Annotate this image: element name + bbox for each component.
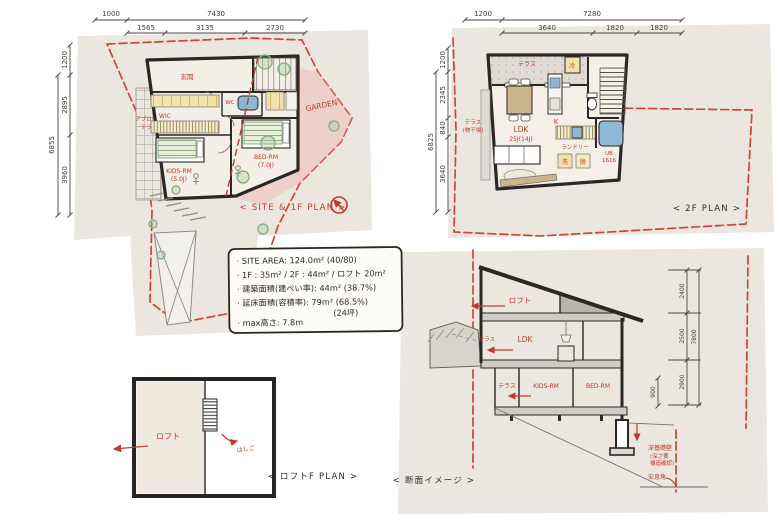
closet-lower-hatch [151, 121, 219, 133]
main-pillow [283, 123, 289, 143]
fridge-label: 冷 [569, 62, 575, 70]
kids-room-size: (5.0J) [171, 176, 187, 183]
section-loft-label: ロフト [509, 296, 532, 305]
stairs-2f [600, 68, 625, 114]
wic-label: WIC [159, 113, 171, 120]
bed-room-label: BED-RM [254, 154, 278, 161]
dim-1000: 1000 [102, 10, 120, 18]
dim-2900: 2900 [679, 374, 686, 389]
ub-size: 1616 [602, 158, 616, 164]
note-building-area: · 建築面積(建ぺい率): 44m² (38.7%) [237, 282, 376, 294]
dim-7430: 7430 [207, 10, 225, 18]
foundation-label: 深基礎壁 [648, 444, 672, 452]
dim-7280: 7280 [583, 10, 601, 18]
dim-1200-left: 1200 [61, 51, 69, 69]
wash-section [398, 248, 768, 514]
dim-2345: 2345 [439, 86, 447, 104]
note-site-area: · SITE AREA: 124.0m² (40/80) [237, 254, 357, 265]
section-ldk-label: LDK [518, 335, 534, 344]
dim-3640-left: 3640 [439, 165, 447, 183]
dim-6855-total: 6855 [48, 136, 56, 154]
note-floor-areas: · 1F : 35m² / 2F : 44m² / ロフト 20m² [237, 268, 386, 280]
architect-sketch-sheet: 1000 7430 1565 3135 2730 1200 2895 3960 … [0, 0, 780, 520]
loft-plan: ロフト はしご < ロフトF PLAN > [114, 379, 358, 496]
dim-1820b: 1820 [650, 24, 668, 32]
dim-1200: 1200 [474, 10, 492, 18]
foundation-note-1: (深さ要 [650, 452, 669, 460]
ldk-label: LDK [514, 125, 530, 134]
terrace-label: テラス [518, 61, 536, 68]
section-terrace1f-label: テラス [498, 383, 516, 390]
ldk-size: 25J(14J) [509, 136, 533, 143]
kitchen-sink [550, 78, 560, 88]
dim-6825-total: 6825 [427, 133, 435, 151]
kids-room-label: KIDS-RM [166, 168, 192, 175]
ladder-rungs [203, 399, 217, 431]
note-tsubo: (24坪) [333, 307, 358, 317]
foundation-stem [616, 420, 628, 450]
dim-7800-total: 7800 [691, 329, 698, 344]
section-kids-label: KIDS-RM [533, 383, 559, 390]
dim-foundation: 900 [650, 386, 657, 398]
storage-box [286, 92, 297, 110]
closet-upper-stripes [151, 95, 219, 107]
genkan-label: 玄関 [181, 72, 194, 81]
bed-room-size: (7.0J) [258, 162, 274, 169]
section-bed-label: BED-RM [586, 383, 610, 390]
section-terrace2f-label: テラス [479, 336, 495, 343]
dim-2500: 2500 [679, 328, 686, 343]
dim-3960: 3960 [61, 166, 69, 184]
dress-label: 脱 [580, 158, 586, 166]
loft-floor-slab [481, 313, 624, 321]
dim-2730: 2730 [266, 24, 284, 32]
kitchen-label: K [554, 118, 559, 126]
dim-3640: 3640 [538, 24, 556, 32]
notes-box: · SITE AREA: 124.0m² (40/80) · 1F : 35m²… [228, 247, 402, 333]
dining-table [507, 86, 532, 114]
washer [572, 127, 582, 138]
building-1f: 玄関 WC WIC KIDS-RM (5.0J) [147, 56, 298, 199]
plan2f-caption: < 2F PLAN > [673, 204, 741, 214]
pendant-lamp [561, 335, 571, 342]
kids-pillow [197, 141, 203, 157]
dim-840: 840 [439, 121, 447, 134]
shoe-cabinet-stripes [266, 92, 284, 110]
sofa [494, 146, 540, 164]
second-floor-slab [481, 360, 622, 368]
kitchen-island-section [558, 346, 574, 361]
dim-1565: 1565 [137, 24, 155, 32]
angle-label: 安息角 [648, 473, 666, 481]
foundation-note-2: 構造確認) [650, 459, 674, 467]
dim-3135: 3135 [196, 24, 214, 32]
loft-label: ロフト [156, 431, 181, 441]
dim-1200-left: 1200 [439, 51, 447, 69]
sketch-canvas: 1000 7430 1565 3135 2730 1200 2895 3960 … [0, 0, 780, 520]
dim-2400: 2400 [679, 283, 686, 298]
side-balcony [481, 90, 490, 180]
laundry-label: ランドリー [561, 144, 589, 151]
section-caption: < 断面イメージ > [393, 475, 475, 486]
wash-label: 洗 [562, 158, 568, 166]
toilet-tank [587, 93, 597, 98]
dim-1820a: 1820 [606, 24, 624, 32]
loft-caption: < ロフトF PLAN > [268, 472, 359, 482]
foundation-footing [610, 448, 634, 455]
balcony-note: (物干場) [463, 126, 484, 134]
ground-floor-slab [495, 407, 627, 415]
note-total-area: · 延床面積(容積率): 79m² (68.5%) [237, 296, 368, 308]
ub-label: UB [605, 151, 613, 157]
toilet [588, 98, 597, 110]
kitchen-stove [550, 98, 560, 110]
neighbor-ground [430, 322, 481, 368]
wc-label: WC [225, 100, 234, 106]
dim-2895: 2895 [61, 96, 69, 114]
note-max-height: · max高さ: 7.8m [237, 317, 303, 328]
bathtub-2f [599, 121, 623, 146]
balcony-label: テラス [465, 119, 481, 126]
kids-blanket-stripes [158, 140, 196, 158]
